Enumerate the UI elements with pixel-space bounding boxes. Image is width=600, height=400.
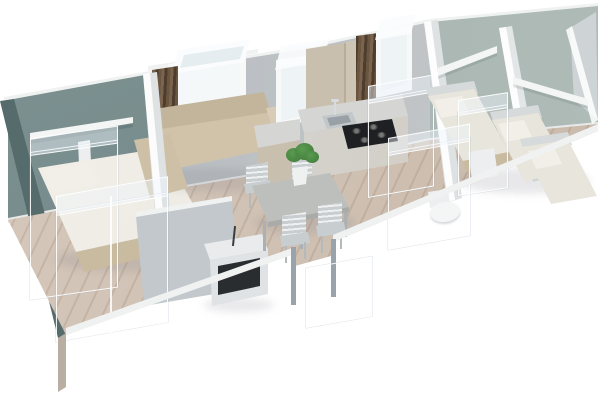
entrance-door-frame-left xyxy=(291,247,296,305)
plant-foliage xyxy=(305,151,319,163)
chair-leg xyxy=(304,242,306,259)
chair-leg xyxy=(321,236,323,253)
table-leg xyxy=(263,221,266,251)
kitchen-faucet xyxy=(334,101,336,115)
kitchen-faucet-spout xyxy=(331,99,339,102)
hob-burner xyxy=(352,128,361,134)
chair-leg xyxy=(249,193,251,208)
ghost-entrance-steps xyxy=(306,256,372,328)
floorplan-3d-render xyxy=(0,0,600,400)
